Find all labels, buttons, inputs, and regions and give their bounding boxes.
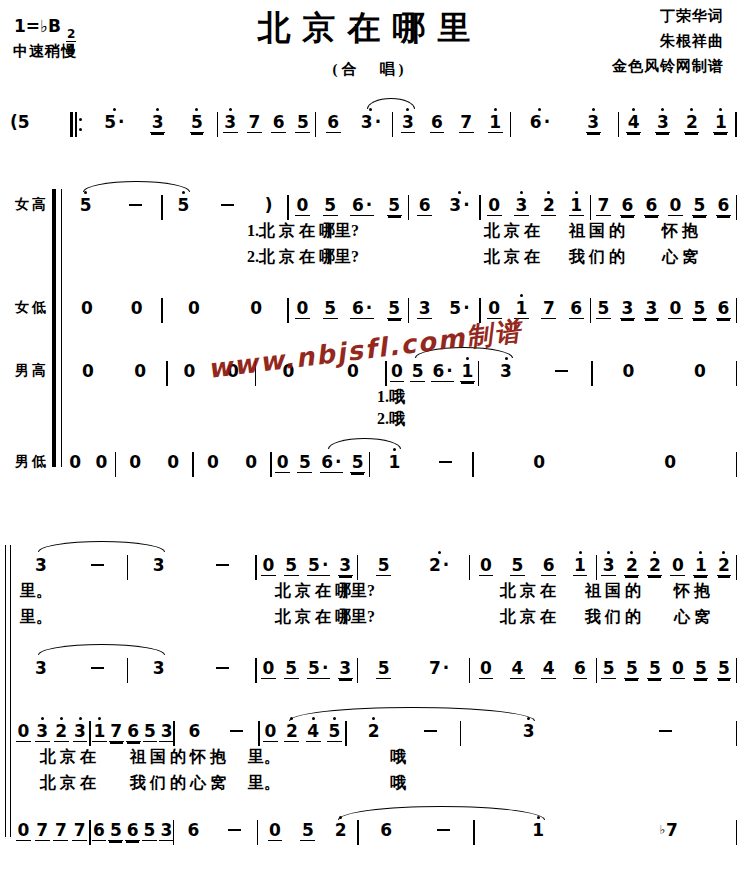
lyric-segment: 北 京 在 <box>40 747 96 768</box>
note: 6 <box>417 187 432 216</box>
note-body: 6 <box>187 721 202 741</box>
note-body: 0 <box>261 555 276 576</box>
note: 1 <box>569 187 584 216</box>
repeat-dots <box>79 112 83 137</box>
dot-glyph <box>632 108 635 111</box>
note: 5 <box>692 290 707 319</box>
note: 0 <box>94 444 109 472</box>
note-body: 1 <box>531 820 546 840</box>
note: ♭7 <box>658 812 680 840</box>
note: 0 <box>249 290 264 318</box>
barline <box>736 452 738 477</box>
measure: 766056 <box>591 187 735 216</box>
note-body: 3 <box>620 298 635 319</box>
note-body: 0 <box>670 658 685 679</box>
note: 0 <box>68 444 83 472</box>
note: 0 <box>621 353 636 381</box>
measure: 00 <box>62 444 115 472</box>
measure: 00 <box>194 444 270 472</box>
note: 0 <box>16 713 31 742</box>
note: 5 <box>692 187 707 216</box>
note-body: 6 <box>573 658 588 679</box>
note: 0 <box>532 444 547 472</box>
lyricist-credit: 丁荣华词 <box>612 4 724 29</box>
barline <box>736 195 738 220</box>
note-body: 6· <box>528 112 551 132</box>
measure: 0323 <box>14 713 89 742</box>
note-body: 5· <box>448 298 471 318</box>
note-body: 3 <box>338 555 353 576</box>
score-header: 1=♭B24 中速稍慢 北京在哪里 (合 唱) 丁荣华词 朱根祥曲 金色风铃网制… <box>0 0 740 88</box>
note-body: 5 <box>142 820 157 841</box>
lyric-segment: 北 京 在 哪里? <box>275 581 375 602</box>
note: 6· <box>350 187 373 216</box>
note-body: 0 <box>670 555 685 576</box>
dot-glyph <box>592 108 595 111</box>
dot-glyph <box>98 717 101 720</box>
note-body: 5 <box>176 195 191 215</box>
note-body: 7 <box>247 112 262 133</box>
note-body <box>212 658 232 678</box>
note: 0 <box>670 547 685 576</box>
note-body: 2· <box>427 555 450 575</box>
note: 6 <box>126 713 141 742</box>
note-body: 7 <box>541 298 556 319</box>
lyric-segment: 北 京 在 哪里? <box>275 607 375 628</box>
staff-line: 33055·352·0561322012里。北 京 在 哪里?北 京 在祖 国 … <box>0 541 740 632</box>
note: 0 <box>479 547 494 576</box>
note: 1 <box>488 104 503 133</box>
note: 5 <box>284 650 299 679</box>
note-body: 5 <box>387 298 402 319</box>
note-body: 3 <box>33 658 48 678</box>
note: 3 <box>73 713 88 742</box>
note: 3 <box>620 290 635 319</box>
dash-glyph <box>228 829 241 831</box>
note: 5 <box>376 650 391 679</box>
octave-dot <box>113 104 116 112</box>
dash-glyph <box>221 204 234 206</box>
lyric-segment: 里。 <box>20 581 52 602</box>
lyric-segment: 2.哦 <box>377 409 405 430</box>
note <box>552 353 572 381</box>
octave-dot <box>520 187 523 195</box>
note-body: 0 <box>268 820 283 841</box>
lyrics-row: 里。北 京 在 哪里?北 京 在祖 国 的怀 抱 <box>14 580 737 606</box>
note-body: 0 <box>275 452 290 473</box>
note-body: 7· <box>427 658 450 678</box>
note-body: 6 <box>326 112 341 133</box>
voice-label: 男低 <box>15 453 49 471</box>
note-body: 1 <box>92 721 107 742</box>
note-body: 4 <box>306 721 321 742</box>
note: 3 <box>338 650 353 679</box>
note: 1 <box>713 104 728 133</box>
note: 0 <box>81 353 96 381</box>
lyrics-row: 1.哦 <box>62 386 737 408</box>
note-body <box>226 721 246 741</box>
note-body: 5· <box>103 112 126 132</box>
note: 1 <box>573 547 588 576</box>
note-body: 0 <box>263 721 278 742</box>
note: 5 <box>295 104 310 133</box>
note: 6 <box>326 104 341 133</box>
note <box>436 444 456 472</box>
measure: 4321 <box>619 104 735 133</box>
staff-line: 男低000000056·5100 <box>0 438 740 477</box>
lyrics-row: 北 京 在我 们 的 心 窝里。哦 <box>14 772 737 798</box>
note-body <box>420 721 440 741</box>
note-body: 1 <box>569 195 584 216</box>
note-body: 5 <box>300 820 315 841</box>
note-body: 2 <box>717 555 732 576</box>
note: 7 <box>541 290 556 319</box>
note: 3 <box>601 547 616 576</box>
note-body: 3 <box>338 658 353 679</box>
note-body: 0 <box>261 658 276 679</box>
note: 5 <box>142 812 157 841</box>
dot-glyph <box>229 108 232 111</box>
note-body: 0 <box>187 298 202 318</box>
note-body: 6 <box>430 112 445 133</box>
measure: 533056 <box>591 290 735 319</box>
voice-label: 女高 <box>15 196 49 214</box>
note <box>226 713 246 741</box>
note-body: 3 <box>73 721 88 742</box>
notes-row: 000000056·5100 <box>62 438 737 477</box>
dot-glyph <box>113 108 116 111</box>
note: 2· <box>427 547 450 575</box>
note-body: 2 <box>54 721 69 742</box>
note: 0 <box>187 290 202 318</box>
note: 0 <box>244 444 259 472</box>
octave-dot <box>547 187 550 195</box>
augmentation-dot: · <box>544 112 550 132</box>
note: 0 <box>16 812 31 841</box>
voice-label: 女低 <box>15 299 49 317</box>
lyric-segment: 北 京 在 <box>484 221 540 242</box>
measure: 00 <box>62 290 161 318</box>
note-body: 0 <box>668 195 683 216</box>
augmentation-dot: · <box>335 452 341 472</box>
note: 6 <box>569 290 584 319</box>
dot-glyph <box>41 717 44 720</box>
octave-dot <box>60 713 63 721</box>
measure: 6 <box>175 713 258 741</box>
repeat-thin-bar <box>75 112 77 137</box>
composer-credit: 朱根祥曲 <box>612 29 724 54</box>
slur-arc <box>338 806 545 820</box>
note-body: 0 <box>182 361 197 381</box>
slur-arc <box>367 98 415 109</box>
lyric-segment: 我 们 的 <box>585 607 641 628</box>
note-body: 6 <box>417 195 432 216</box>
note: 5 <box>143 713 158 742</box>
lyric-segment: 里。 <box>248 773 280 794</box>
note-body: 0 <box>663 452 678 472</box>
note-body: 2 <box>333 820 348 840</box>
note-body: 0 <box>94 452 109 472</box>
note-body: 3 <box>601 555 616 576</box>
octave-dot <box>607 547 610 555</box>
dot-glyph <box>538 108 541 111</box>
octave-dot <box>575 187 578 195</box>
note-body: 1 <box>573 555 588 576</box>
augmentation-dot: · <box>322 555 328 575</box>
notes-row: 0000056·535·0176533056 <box>62 284 737 323</box>
measure: 35· <box>409 290 479 319</box>
note: 0 <box>670 650 685 679</box>
notes-row: 0323176536024523 <box>14 707 737 746</box>
note: 0 <box>128 444 143 472</box>
note: 6 <box>125 812 140 841</box>
note: 3 <box>586 104 601 133</box>
octave-dot <box>458 187 461 195</box>
barline <box>736 658 738 683</box>
note-body: 5 <box>297 452 312 473</box>
note-body: 5 <box>78 195 93 215</box>
note-body: 2 <box>366 721 381 741</box>
note: 2 <box>684 104 699 133</box>
note-body: 0 <box>479 555 494 576</box>
note: 5· <box>307 650 330 679</box>
note-body: 5 <box>410 361 425 382</box>
barline <box>736 361 738 386</box>
note: 0 <box>261 650 276 679</box>
note-body <box>212 555 232 575</box>
credits: 丁荣华词 朱根祥曲 金色风铃网制谱 <box>612 4 724 79</box>
note-body: 0 <box>68 452 83 472</box>
note: 0 <box>487 290 502 319</box>
note <box>212 547 232 575</box>
note-body: 7 <box>596 195 611 216</box>
octave-dot <box>579 547 582 555</box>
dot-glyph <box>156 108 159 111</box>
measure: 056·5 <box>289 187 408 216</box>
note-body: 6· <box>350 195 373 216</box>
note: 0 <box>166 444 181 472</box>
dot-glyph <box>520 294 523 297</box>
dash-glyph <box>424 730 437 732</box>
note-body: 3 <box>499 361 514 381</box>
measure: 63· <box>409 187 479 216</box>
dot-glyph <box>575 191 578 194</box>
repeat-dot <box>79 128 82 131</box>
note-body: 0 <box>692 361 707 381</box>
note: 3 <box>223 104 238 133</box>
measure: 0446 <box>470 650 595 679</box>
note: 5 <box>693 650 708 679</box>
note: 6 <box>620 187 635 216</box>
dot-glyph <box>661 108 664 111</box>
note-body: 5 <box>692 298 707 319</box>
note-body: 0 <box>133 361 148 381</box>
note-body: 0 <box>16 721 31 742</box>
note-body: 6 <box>271 112 286 133</box>
note-body: 5 <box>108 820 123 841</box>
note: 0 <box>261 547 276 576</box>
note-body: 2 <box>624 555 639 576</box>
note-body: 5 <box>327 721 342 742</box>
lyric-segment: 里。 <box>248 747 280 768</box>
lyrics-row: 北 京 在祖 国 的 怀 抱里。哦 <box>14 746 737 772</box>
measure: 3765 <box>218 104 315 133</box>
dash-glyph <box>91 667 104 669</box>
barline <box>735 112 737 137</box>
octave-dot <box>438 547 441 555</box>
note-body: 1 <box>713 112 728 133</box>
note-body: 2 <box>541 195 556 216</box>
dash-glyph <box>437 829 450 831</box>
note: 0 <box>668 290 683 319</box>
octave-dot <box>79 713 82 721</box>
staff-line: 女高55)056·563·03217660561.北 京 在 哪里?北 京 在祖… <box>0 181 740 272</box>
lyric-segment: 哦 <box>390 747 406 768</box>
octave-dot <box>538 104 541 112</box>
note: ) <box>263 187 274 215</box>
note-body: 5 <box>510 555 525 576</box>
octave-dot <box>722 547 725 555</box>
note: 0 <box>79 290 94 318</box>
note-body: 2 <box>684 112 699 133</box>
note: 5 <box>596 290 611 319</box>
note: 6 <box>644 187 659 216</box>
note-body: 5 <box>284 658 299 679</box>
lyric-segment: 北 京 在 <box>500 607 556 628</box>
lyric-segment: 心 窝 <box>674 607 710 628</box>
note: 7 <box>459 104 474 133</box>
note-body: 5 <box>323 195 338 216</box>
lyric-segment: 心 窝 <box>662 247 698 268</box>
dot-glyph <box>690 108 693 111</box>
note-body <box>225 820 245 840</box>
note-body: 3 <box>150 112 165 133</box>
note-body: 5 <box>323 298 338 319</box>
note: 5 <box>284 547 299 576</box>
note-body <box>436 452 456 472</box>
note-body: 6 <box>716 195 731 216</box>
repeat-dot <box>79 118 82 121</box>
note: 7 <box>53 812 68 841</box>
measure: 056·5 <box>289 290 408 319</box>
note-body: 1 <box>488 112 503 133</box>
note-body <box>433 820 453 840</box>
note-body: 6· <box>350 298 373 319</box>
octave-dot <box>632 104 635 112</box>
measure: 00 <box>593 353 736 381</box>
note: 0 <box>479 650 494 679</box>
note-body: 2 <box>284 721 299 742</box>
note: 7 <box>109 713 124 742</box>
dot-glyph <box>438 551 441 554</box>
note: 6 <box>716 187 731 216</box>
note: 7 <box>596 187 611 216</box>
key-text: 1=♭B <box>14 16 61 36</box>
lyric-segment: 1.哦 <box>377 387 405 408</box>
note: 6 <box>573 650 588 679</box>
note-body: 5 <box>717 658 732 679</box>
dot-glyph <box>607 551 610 554</box>
note-body: 0 <box>487 195 502 216</box>
repeat-open-sign <box>70 112 83 137</box>
staff-line: 077765653605261♭7 <box>0 806 740 845</box>
note-body: 3 <box>401 112 416 133</box>
note: 6 <box>430 104 445 133</box>
augmentation-dot: · <box>443 555 449 575</box>
measure: 00 <box>163 290 287 318</box>
note-body: 3· <box>359 112 382 132</box>
note <box>212 650 232 678</box>
engraver-credit: 金色风铃网制谱 <box>612 54 724 79</box>
note-body: 7 <box>72 820 87 841</box>
note-body: 1 <box>693 555 708 576</box>
note: 0 <box>692 353 707 381</box>
barline <box>736 820 738 845</box>
note-body: 4 <box>541 658 556 679</box>
note-body: 0 <box>128 452 143 472</box>
lyrics-row: 里。北 京 在 哪里?北 京 在我 们 的心 窝 <box>14 606 737 632</box>
note: 5 <box>108 812 123 841</box>
note-body: 5 <box>647 658 662 679</box>
note: 7 <box>72 812 87 841</box>
sheet-music-page: 1=♭B24 中速稍慢 北京在哪里 (合 唱) 丁荣华词 朱根祥曲 金色风铃网制… <box>0 0 740 876</box>
note-body: 5 <box>624 658 639 679</box>
dot-glyph <box>195 108 198 111</box>
lyric-segment: 北 京 在 <box>500 581 556 602</box>
measure: 52· <box>358 547 469 576</box>
measure: 0321 <box>481 187 590 216</box>
dot-glyph <box>630 551 633 554</box>
barline <box>736 298 738 323</box>
staff-line: 0323176536024523北 京 在祖 国 的 怀 抱里。哦北 京 在我 … <box>0 707 740 798</box>
note: 7 <box>247 104 262 133</box>
measure: 6 <box>174 812 257 840</box>
measure: 322012 <box>597 547 735 576</box>
measure: 5·35 <box>91 104 217 133</box>
note-body: 5· <box>307 555 330 576</box>
measure: 00 <box>116 444 192 472</box>
note-body: 3 <box>223 112 238 133</box>
note: 2 <box>647 547 662 576</box>
note-body: 3 <box>159 721 174 742</box>
octave-dot <box>661 104 664 112</box>
note: 0 <box>275 444 290 473</box>
dot-glyph <box>722 551 725 554</box>
note-body: 0 <box>206 452 221 472</box>
note-body: 0 <box>295 298 310 319</box>
note: 7· <box>427 650 450 678</box>
note-body: 3 <box>417 298 432 319</box>
octave-dot <box>699 547 702 555</box>
note-body: 5 <box>376 658 391 679</box>
note-body: 5 <box>376 555 391 576</box>
octave-dot <box>195 104 198 112</box>
note: 6 <box>92 812 107 841</box>
note-body: 5· <box>307 658 330 679</box>
dash-glyph <box>129 204 142 206</box>
dash-glyph <box>230 730 243 732</box>
intro-staff-line: (55·35376563·36716·34321 <box>0 98 740 137</box>
notes-row: (55·35376563·36716·34321 <box>10 98 737 137</box>
octave-dot <box>592 104 595 112</box>
measure: 055·3 <box>257 547 357 576</box>
measure: 57· <box>358 650 469 679</box>
note-body: 3 <box>151 658 166 678</box>
note-body: 6 <box>716 298 731 319</box>
lyric-segment: 里。 <box>20 607 52 628</box>
augmentation-dot: · <box>463 195 469 215</box>
dot-glyph <box>60 717 63 720</box>
